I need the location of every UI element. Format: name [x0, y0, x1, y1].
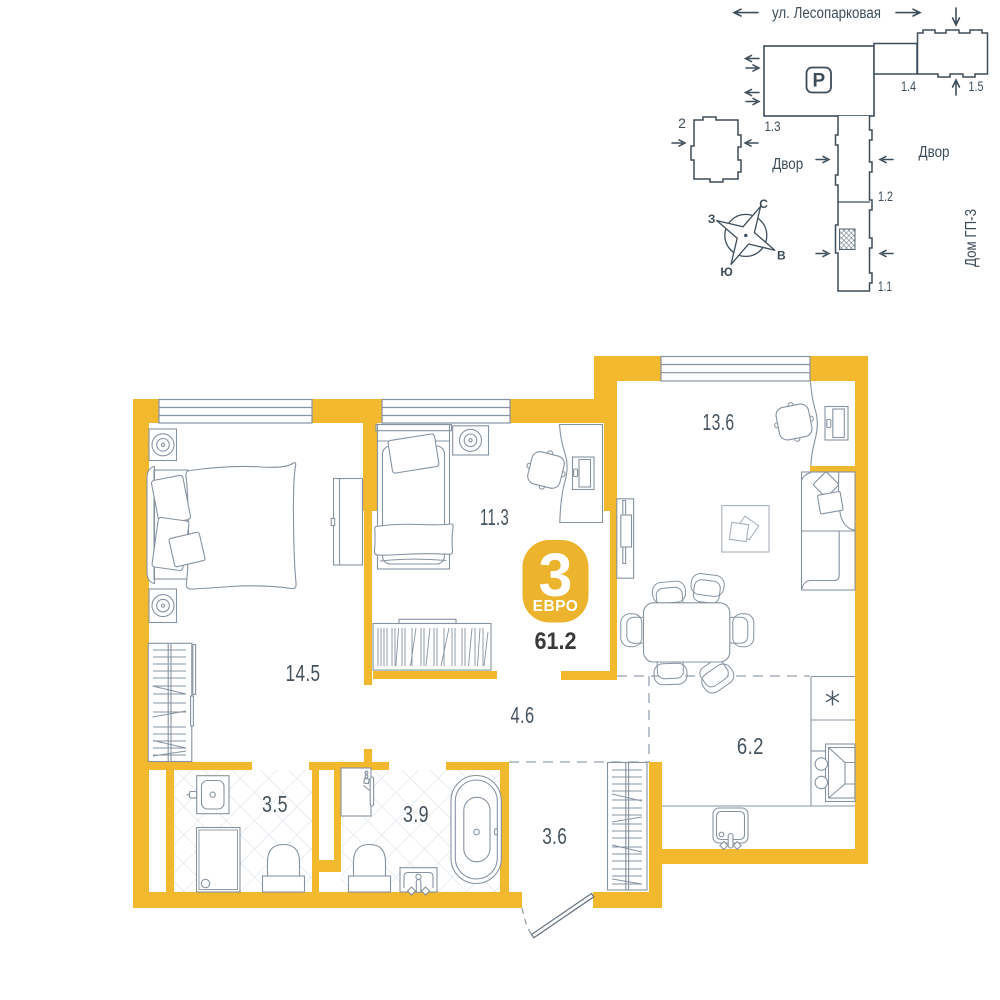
- svg-text:1.5: 1.5: [969, 78, 984, 94]
- svg-text:В: В: [777, 249, 786, 263]
- svg-text:1.3: 1.3: [765, 118, 781, 134]
- svg-text:6.2: 6.2: [737, 733, 764, 759]
- svg-text:1.1: 1.1: [878, 278, 892, 294]
- svg-text:Двор: Двор: [772, 156, 803, 173]
- svg-text:14.5: 14.5: [286, 660, 321, 686]
- svg-text:1.4: 1.4: [901, 78, 916, 94]
- svg-text:1.2: 1.2: [878, 188, 893, 204]
- svg-text:2: 2: [678, 115, 686, 131]
- svg-text:3.9: 3.9: [403, 801, 429, 827]
- svg-text:Дом ГП-3: Дом ГП-3: [963, 209, 980, 267]
- svg-text:Двор: Двор: [919, 144, 950, 161]
- svg-text:3.5: 3.5: [262, 791, 288, 817]
- svg-text:3.6: 3.6: [542, 823, 567, 849]
- svg-text:61.2: 61.2: [535, 628, 577, 655]
- svg-text:11.3: 11.3: [480, 504, 509, 530]
- svg-text:ул. Лесопарковая: ул. Лесопарковая: [772, 5, 881, 22]
- svg-text:13.6: 13.6: [703, 409, 735, 435]
- svg-text:4.6: 4.6: [511, 702, 535, 728]
- svg-text:С: С: [759, 197, 768, 211]
- svg-text:ЕВРО: ЕВРО: [533, 598, 579, 615]
- svg-text:З: З: [708, 212, 716, 226]
- svg-text:Ю: Ю: [720, 265, 732, 279]
- svg-text:P: P: [813, 71, 826, 92]
